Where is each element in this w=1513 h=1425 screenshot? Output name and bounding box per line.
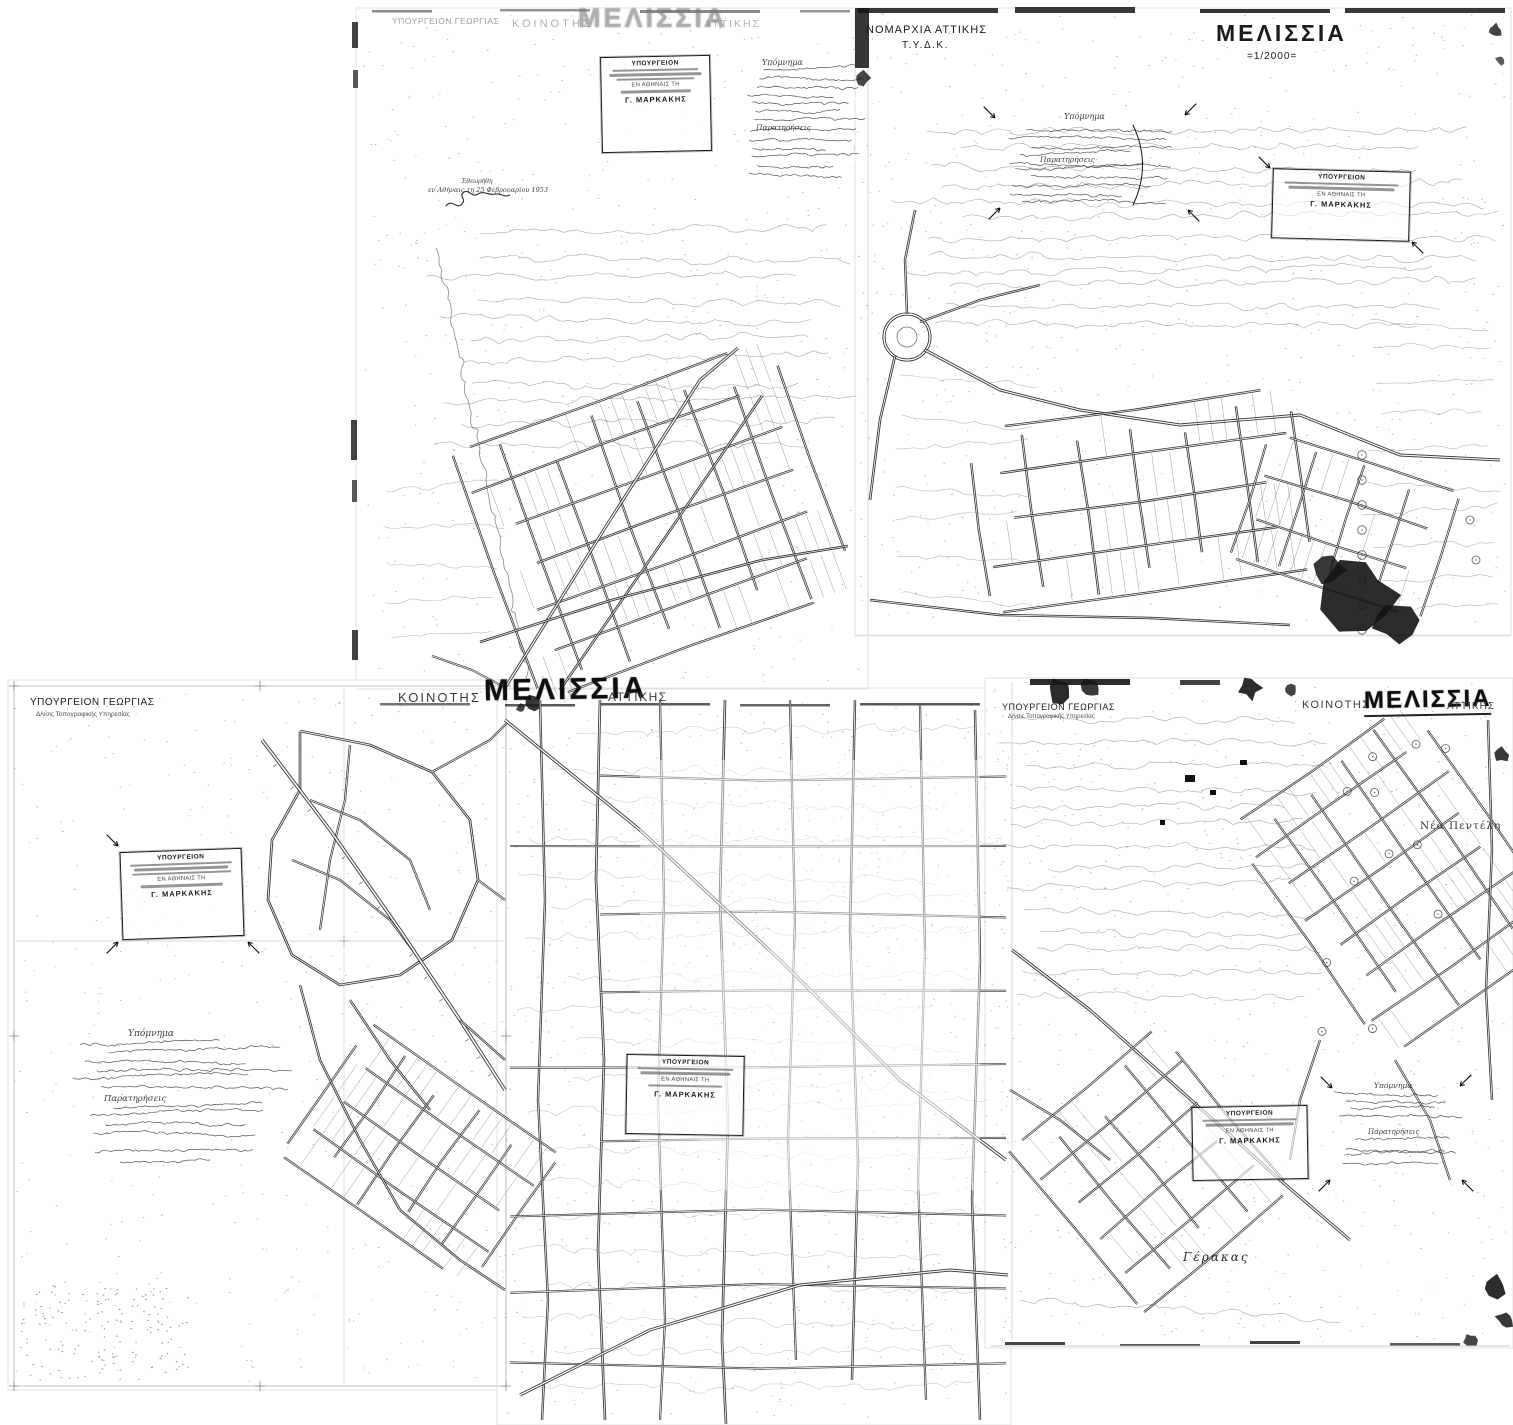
tr-scale-label: =1/2000= xyxy=(1247,51,1297,63)
br-stamp-date: ΕΝ ΑΘΗΝΑΙΣ ΤΗ xyxy=(1198,1127,1302,1135)
illegible-text-line xyxy=(612,68,698,72)
br-stamp-signature: Γ. ΜΑΡΚΑΚΗΣ xyxy=(1198,1135,1302,1146)
illegible-text-line xyxy=(620,89,691,93)
tr-remarks-heading: Παρατηρήσεις xyxy=(1040,156,1095,165)
br-remarks-heading: Παρατηρήσεις xyxy=(1368,1128,1419,1136)
bcn-stamp-date: ΕΝ ΑΘΗΝΑΙΣ ΤΗ xyxy=(632,1076,738,1084)
tr-title-label: ΜΕΛΙΣΣΙΑ xyxy=(1216,20,1347,47)
illegible-text-line xyxy=(609,72,701,76)
tr-agency-label: ΝΟΜΑΡΧΙΑ ΑΤΤΙΚΗΣ xyxy=(866,24,987,37)
tr-stamp-signature: Γ. ΜΑΡΚΑΚΗΣ xyxy=(1278,199,1404,211)
br-stamp-ministry: ΥΠΟΥΡΓΕΙΟΝ xyxy=(1197,1109,1301,1118)
tl-review-note-word: Εθεωρήθη xyxy=(462,178,492,185)
tl-legend-heading: Υπόμνημα xyxy=(762,58,803,67)
br-approval-stamp: ΥΠΟΥΡΓΕΙΟΝ ΕΝ ΑΘΗΝΑΙΣ ΤΗ Γ. ΜΑΡΚΑΚΗΣ xyxy=(1191,1105,1308,1181)
tl-region-label: ΑΤΤΙΚΗΣ xyxy=(704,18,761,30)
bcn-approval-stamp: ΥΠΟΥΡΓΕΙΟΝ ΕΝ ΑΘΗΝΑΙΣ ΤΗ Γ. ΜΑΡΚΑΚΗΣ xyxy=(625,1054,744,1136)
place-label-nea-penteli: Νέα Πεντέλη xyxy=(1420,820,1501,832)
illegible-text-line xyxy=(641,1072,730,1076)
illegible-text-line xyxy=(1203,1118,1297,1122)
tr-stamp-date: ΕΝ ΑΘΗΝΑΙΣ ΤΗ xyxy=(1278,190,1404,199)
tr-approval-stamp: ΥΠΟΥΡΓΕΙΟΝ ΕΝ ΑΘΗΝΑΙΣ ΤΗ Γ. ΜΑΡΚΑΚΗΣ xyxy=(1271,168,1411,242)
illegible-text-line xyxy=(616,77,694,81)
tl-stamp-signature: Γ. ΜΑΡΚΑΚΗΣ xyxy=(607,94,705,105)
bl-notes-heading: Υπόμνημα xyxy=(128,1029,174,1040)
bl-ministry-label: ΥΠΟΥΡΓΕΙΟΝ ΓΕΩΡΓΙΑΣ xyxy=(30,697,154,709)
tl-stamp-ministry: ΥΠΟΥΡΓΕΙΟΝ xyxy=(606,59,704,68)
tr-agency-dept-label: Τ.Υ.Δ.Κ. xyxy=(902,40,949,52)
illegible-text-line xyxy=(638,1067,733,1071)
br-community-label: ΚΟΙΝΟΤΗΣ xyxy=(1302,699,1371,712)
illegible-text-line xyxy=(648,1084,722,1088)
tl-review-note-date: εν Αθήναις τη 25 Φεβρουαρίου 1953 xyxy=(428,187,548,195)
br-ministry-label: ΥΠΟΥΡΓΕΙΟΝ ΓΕΩΡΓΙΑΣ xyxy=(1002,702,1115,713)
tl-approval-stamp: ΥΠΟΥΡΓΕΙΟΝ ΕΝ ΑΘΗΝΑΙΣ ΤΗ Γ. ΜΑΡΚΑΚΗΣ xyxy=(600,55,712,153)
br-region-label: ΑΤΤΙΚΗΣ xyxy=(1447,701,1495,713)
tl-remarks-heading: Παρατηρήσεις xyxy=(756,124,811,133)
bl-remarks-heading: Παρατηρήσεις xyxy=(104,1094,166,1104)
br-legend-heading: Υπόμνημα xyxy=(1374,1082,1412,1091)
tl-stamp-date: ΕΝ ΑΘΗΝΑΙΣ ΤΗ xyxy=(607,81,705,89)
bl-approval-stamp: ΥΠΟΥΡΓΕΙΟΝ ΕΝ ΑΘΗΝΑΙΣ ΤΗ Γ. ΜΑΡΚΑΚΗΣ xyxy=(120,848,245,940)
bcn-stamp-ministry: ΥΠΟΥΡΓΕΙΟΝ xyxy=(633,1058,739,1067)
bl-ministry-dept-label: Δ/νσις Τοπογραφικής Υπηρεσίας xyxy=(36,711,130,719)
bl-stamp-signature: Γ. ΜΑΡΚΑΚΗΣ xyxy=(127,887,237,900)
bcn-stamp-signature: Γ. ΜΑΡΚΑΚΗΣ xyxy=(632,1089,738,1100)
tr-legend-heading: Υπόμνημα xyxy=(1064,112,1105,121)
illegible-text-line xyxy=(1205,1123,1293,1127)
br-ministry-dept-label: Δ/νσις Τοπογραφικής Υπηρεσίας xyxy=(1008,714,1095,721)
tl-ministry-label: ΥΠΟΥΡΓΕΙΟΝ ΓΕΩΡΓΙΑΣ xyxy=(392,16,499,26)
place-label-gerakas: Γέρακας xyxy=(1183,1250,1250,1264)
scanned-map-collage: ΥΠΟΥΡΓΕΙΟΝ ΓΕΩΡΓΙΑΣ ΚΟΙΝΟΤΗΣ ΜΕΛΙΣΣΙΑ ΑΤ… xyxy=(0,0,1513,1425)
bc-community-label: ΚΟΙΝΟΤΗΣ xyxy=(398,690,481,705)
bc-region-label: ΑΤΤΙΚΗΣ xyxy=(608,690,668,704)
